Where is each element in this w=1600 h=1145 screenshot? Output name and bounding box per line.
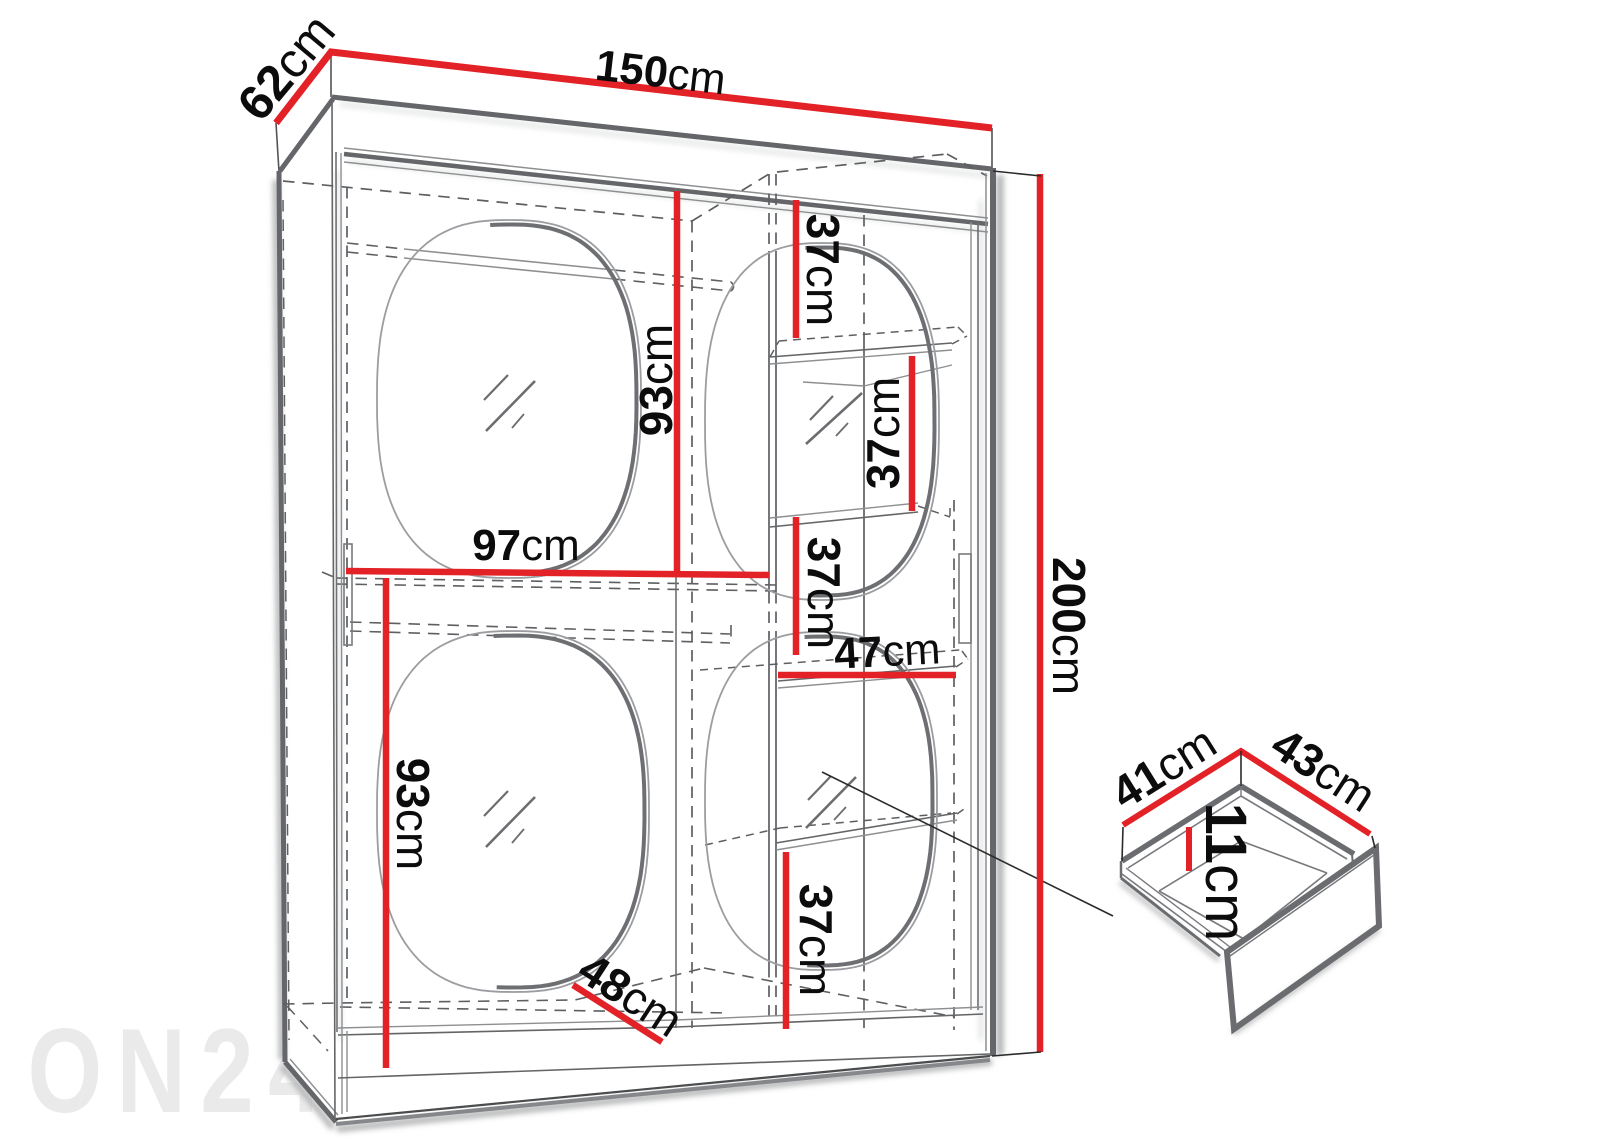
svg-text:93cm: 93cm [630,324,682,437]
svg-text:37cm: 37cm [790,884,842,997]
svg-text:47cm: 47cm [833,625,942,679]
svg-text:97cm: 97cm [472,521,580,570]
svg-text:93cm: 93cm [387,758,439,871]
svg-text:11cm: 11cm [1193,803,1258,942]
svg-text:37cm: 37cm [797,214,849,327]
svg-text:200cm: 200cm [1043,557,1095,695]
svg-text:37cm: 37cm [857,377,909,490]
